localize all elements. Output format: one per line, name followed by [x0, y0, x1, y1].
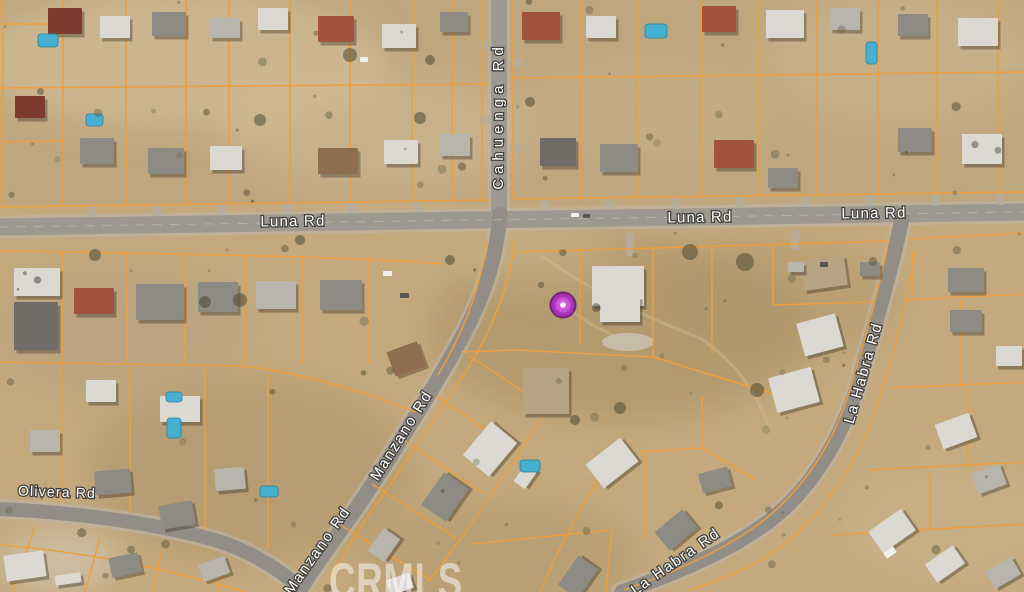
- building: [86, 380, 116, 402]
- tree: [570, 415, 580, 425]
- road-label-luna-east: Luna Rd: [841, 204, 906, 222]
- shrub: [17, 288, 20, 291]
- building: [318, 148, 358, 174]
- shrub: [674, 232, 677, 235]
- swimming-pool: [167, 418, 181, 438]
- shrub: [585, 6, 593, 14]
- building: [382, 24, 416, 48]
- shrub: [995, 147, 1002, 154]
- shrub: [556, 378, 562, 384]
- shrub: [715, 111, 723, 119]
- shrub: [54, 156, 60, 162]
- shrub: [660, 354, 665, 359]
- shrub: [582, 527, 590, 535]
- building: [714, 140, 754, 168]
- shrub: [900, 6, 905, 11]
- shrub: [4, 25, 7, 28]
- shrub: [243, 189, 250, 196]
- shrub: [103, 573, 109, 579]
- map-viewport[interactable]: Cahuenga Rd Luna Rd Luna Rd Luna Rd Oliv…: [0, 0, 1024, 592]
- shrub: [905, 151, 908, 154]
- vehicle: [583, 214, 590, 218]
- shrub: [313, 31, 318, 36]
- shrub: [953, 246, 961, 254]
- building: [800, 255, 848, 291]
- building: [198, 556, 230, 582]
- tree: [295, 235, 305, 245]
- building: [586, 16, 616, 38]
- building: [440, 134, 470, 156]
- shrub: [516, 105, 520, 109]
- shrub: [291, 522, 297, 528]
- shrub: [176, 152, 182, 158]
- shrub: [782, 533, 786, 537]
- satellite-map[interactable]: Cahuenga Rd Luna Rd Luna Rd Luna Rd Oliv…: [0, 0, 1024, 592]
- shrub: [437, 542, 440, 545]
- shrub: [208, 269, 211, 272]
- shrub: [94, 109, 102, 117]
- shrub: [838, 518, 841, 521]
- building: [958, 18, 998, 46]
- shrub: [458, 162, 466, 170]
- tree: [343, 48, 357, 62]
- building: [523, 368, 569, 414]
- shrub: [838, 26, 846, 34]
- shrub: [23, 271, 27, 275]
- building: [210, 18, 240, 38]
- tree: [525, 97, 535, 107]
- shrub: [473, 459, 480, 466]
- building: [766, 10, 804, 38]
- vehicle: [571, 213, 579, 217]
- building: [256, 281, 296, 309]
- shrub: [1018, 233, 1021, 236]
- shrub: [787, 154, 790, 157]
- shrub: [724, 299, 727, 302]
- shrub: [762, 425, 771, 434]
- tree: [414, 112, 426, 124]
- tree: [682, 244, 698, 260]
- shrub: [269, 389, 275, 395]
- vehicle: [400, 293, 409, 298]
- shrub: [404, 148, 407, 151]
- building: [210, 146, 242, 170]
- shrub: [953, 191, 958, 196]
- swimming-pool: [866, 42, 877, 64]
- tree: [233, 293, 247, 307]
- shrub: [31, 142, 35, 146]
- building: [384, 140, 418, 164]
- road-label-olivera: Olivera Rd: [18, 482, 97, 501]
- shrub: [788, 275, 796, 283]
- shrub: [7, 378, 14, 385]
- tree: [199, 296, 211, 308]
- property-marker[interactable]: [550, 292, 577, 319]
- shrub: [361, 370, 366, 375]
- building: [585, 438, 638, 489]
- shrub: [37, 88, 44, 95]
- building: [152, 12, 186, 36]
- shrub: [952, 102, 961, 111]
- shrub: [251, 200, 254, 203]
- building: [600, 296, 640, 322]
- shrub: [779, 369, 785, 375]
- shrub: [505, 523, 509, 527]
- building: [100, 16, 130, 38]
- shrub: [786, 417, 789, 420]
- shrub: [151, 109, 156, 114]
- building: [318, 16, 354, 42]
- swimming-pool: [520, 460, 540, 472]
- building: [768, 168, 798, 188]
- shrub: [721, 43, 725, 47]
- shrub: [5, 506, 13, 514]
- shrub: [254, 498, 258, 502]
- shrub: [9, 192, 15, 198]
- building: [30, 430, 60, 452]
- building: [540, 138, 576, 166]
- swimming-pool: [38, 34, 58, 47]
- shrub: [842, 364, 845, 367]
- shrub: [869, 257, 878, 266]
- crmls-watermark: CRMLS: [329, 553, 463, 592]
- shrub: [438, 165, 447, 174]
- shrub: [931, 545, 940, 554]
- shrub: [715, 501, 723, 509]
- road-label-luna-west: Luna Rd: [260, 212, 325, 230]
- building: [522, 12, 560, 40]
- shrub: [386, 367, 394, 375]
- shrub: [653, 139, 661, 147]
- shrub: [646, 133, 653, 140]
- tree: [89, 249, 101, 261]
- shrub: [225, 248, 228, 251]
- shrub: [590, 413, 599, 422]
- building: [898, 128, 932, 152]
- marker-center-dot: [560, 302, 566, 308]
- shrub: [768, 560, 776, 568]
- shrub: [130, 269, 133, 272]
- shrub: [400, 31, 403, 34]
- shrub: [632, 252, 638, 258]
- driveway-loop: [602, 333, 654, 351]
- building: [3, 550, 46, 581]
- building: [948, 268, 984, 292]
- shrub: [179, 438, 186, 445]
- shrub: [543, 176, 548, 181]
- shrub: [258, 58, 267, 67]
- shrub: [203, 109, 210, 116]
- shrub: [690, 392, 693, 395]
- shrub: [765, 507, 772, 514]
- building: [214, 467, 246, 492]
- shrub: [325, 111, 333, 119]
- building: [600, 144, 638, 172]
- shrub: [771, 150, 780, 159]
- shrub: [236, 128, 239, 131]
- shrub: [865, 485, 869, 489]
- building: [898, 14, 928, 36]
- shrub: [842, 351, 845, 354]
- tree: [445, 255, 455, 265]
- building: [320, 280, 362, 310]
- shrub: [985, 475, 988, 478]
- building: [440, 12, 468, 32]
- shrub: [926, 445, 931, 450]
- swimming-pool: [260, 486, 278, 497]
- shrub: [823, 357, 830, 364]
- building: [950, 310, 982, 332]
- building: [258, 8, 288, 30]
- tree: [614, 402, 626, 414]
- swimming-pool: [166, 392, 182, 402]
- building: [48, 8, 82, 34]
- shrub: [473, 268, 476, 271]
- shrub: [360, 317, 369, 326]
- shrub: [127, 546, 135, 554]
- building: [80, 138, 114, 164]
- shrub: [892, 174, 895, 177]
- shrub: [559, 249, 566, 256]
- vehicle: [383, 271, 392, 276]
- tree: [425, 55, 435, 65]
- shrub: [608, 72, 611, 75]
- shrub: [441, 489, 445, 493]
- building: [136, 284, 184, 320]
- vehicle: [820, 262, 828, 267]
- vehicle: [360, 57, 368, 62]
- road-label-luna-center: Luna Rd: [667, 208, 732, 226]
- tree: [254, 114, 266, 126]
- tree: [736, 253, 754, 271]
- building: [15, 96, 45, 118]
- shrub: [281, 245, 288, 252]
- road-label-cahuenga: Cahuenga Rd: [490, 42, 507, 190]
- shrub: [592, 303, 601, 312]
- shrub: [34, 276, 41, 283]
- swimming-pool: [645, 24, 667, 38]
- shrub: [417, 182, 424, 189]
- shrub: [313, 95, 317, 99]
- shrub: [538, 282, 545, 289]
- building: [148, 148, 184, 174]
- building: [14, 302, 58, 350]
- shrub: [161, 540, 170, 549]
- building: [702, 6, 736, 32]
- building: [94, 468, 132, 495]
- shrub: [781, 511, 784, 514]
- building: [996, 346, 1022, 366]
- shrub: [621, 365, 627, 371]
- shrub: [177, 1, 180, 4]
- building: [74, 288, 114, 314]
- shrub: [971, 141, 978, 148]
- shrub: [704, 307, 707, 310]
- building: [830, 8, 860, 30]
- building: [788, 262, 804, 272]
- shrub: [77, 528, 86, 537]
- tree: [750, 383, 764, 397]
